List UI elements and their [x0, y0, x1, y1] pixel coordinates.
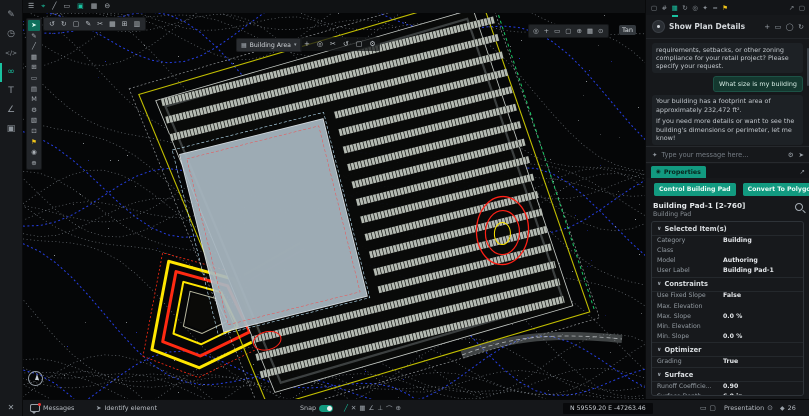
redo-icon[interactable]: ↻ [61, 20, 67, 28]
settings-icon[interactable]: ⚙ [369, 40, 375, 48]
section-title: Optimizer [664, 346, 701, 354]
copy-icon[interactable]: ▢ [73, 20, 80, 28]
grid-icon[interactable]: ▦ [109, 20, 116, 28]
section-header[interactable]: Selected Item(s) [652, 222, 803, 236]
cut-icon[interactable]: ✂ [97, 20, 103, 28]
property-label: Category [657, 237, 723, 246]
property-row: Runoff Coefficie...0.90 [652, 382, 803, 392]
assistant-message-line: If you need more details or want to see … [656, 117, 799, 142]
property-label: Runoff Coefficie... [657, 383, 723, 392]
panel-tab-strip: ▢#▦↻◎✦≈⚑ ↗▢ [646, 0, 809, 15]
new-window-icon[interactable]: ▢ [799, 1, 805, 15]
convert-to-polygon-button[interactable]: Convert To Polygon [743, 183, 809, 196]
view-mode-icons: ▭▢ [700, 400, 716, 416]
chat-header: Show Plan Details +▭◯↻ [646, 15, 809, 39]
canvas-tool-strip: ➤✎╱▦⊞▭▤M⚙▧⊡⚑◉⊕ [26, 18, 42, 170]
identify-cursor-icon: ➤ [96, 404, 101, 412]
property-value[interactable]: 0.0 % [723, 313, 742, 322]
status-bar: Messages ➤ Identify element Snap ╱✕▦∠⊥⌒⊕… [22, 399, 809, 416]
scale-icon: ◆ [780, 405, 785, 412]
history-icon[interactable]: ↻ [798, 23, 804, 31]
site-plan-canvas[interactable]: ↺↻▢✎✂▦⊞▥ ➤✎╱▦⊞▭▤M⚙▧⊡⚑◉⊕ ▦ Building Area … [22, 13, 645, 400]
message-input[interactable] [661, 151, 783, 159]
application-window: ✎ ◷ </> ∞ T ∠ ▣ ✕ ☰⌖╱▭▣▦⊖ ↺↻▢✎✂▦⊞▥ ➤✎╱▦⊞… [0, 0, 809, 416]
measure-angle-icon[interactable]: ∠ [0, 101, 22, 120]
chevron-down-icon [657, 281, 661, 287]
hatch-tool-icon[interactable]: ▧ [28, 115, 40, 126]
presentation-power-icon[interactable]: ⊙ [767, 404, 773, 412]
property-value[interactable]: False [723, 292, 741, 301]
tab-properties[interactable]: ◉ Properties [651, 166, 706, 178]
zoom-in-icon[interactable]: + [544, 27, 549, 35]
edit-floatbar: ↺↻▢✎✂▦⊞▥ [43, 17, 146, 31]
code-icon[interactable]: </> [0, 44, 22, 63]
selection-actions-bar: +◎✂↺▢⚙ [300, 37, 380, 51]
rectangle-tool-icon[interactable]: ▭ [28, 73, 40, 84]
history-icon[interactable]: ◷ [0, 25, 22, 44]
rectangle-tool-icon[interactable]: ▭ [63, 0, 70, 13]
snap-toggle[interactable] [319, 405, 333, 412]
add-grid-icon[interactable]: ⊞ [122, 20, 128, 28]
input-settings-icon[interactable]: ⚙ [788, 151, 794, 159]
selection-subtitle: Building Pad [653, 211, 795, 218]
property-row: Surface Depth6.0 in [652, 393, 803, 396]
messages-icon[interactable] [30, 404, 40, 412]
view-icon[interactable]: ⊙ [598, 27, 603, 35]
properties-icon: ◉ [656, 169, 661, 175]
tab-pages-icon[interactable]: ▢ [651, 1, 657, 15]
property-row: GradingTrue [652, 357, 803, 367]
property-value[interactable]: Authoring [723, 257, 758, 266]
properties-panel: Selected Item(s) CategoryBuilding Class … [651, 221, 804, 396]
chevron-down-icon [657, 372, 661, 378]
undo-icon[interactable]: ↺ [49, 20, 55, 28]
repeat-icon[interactable]: ↺ [343, 40, 349, 48]
property-value[interactable]: 6.0 in [723, 393, 743, 396]
duplicate-icon[interactable]: ▢ [356, 40, 363, 48]
target-tool-icon[interactable]: ◉ [28, 147, 40, 158]
assistant-message-line: Your building has a footprint area of ap… [656, 97, 799, 114]
add-point-tool-icon[interactable]: ⊕ [28, 158, 40, 169]
property-value[interactable]: Building Pad-1 [723, 267, 774, 276]
frame-icon[interactable]: ▢ [565, 27, 571, 35]
snap-label: Snap [300, 404, 316, 412]
chat-input-row: ✦ ⚙➤ [646, 146, 809, 163]
tab-refresh-icon[interactable]: ↻ [682, 1, 687, 15]
layers-icon[interactable]: ▦ [91, 0, 98, 13]
cursor-coordinates: N 59559.20 E -47263.46 [563, 403, 653, 414]
app-sidebar: ✎ ◷ </> ∞ T ∠ ▣ ✕ [0, 0, 23, 416]
property-row: Min. Slope0.0 % [652, 332, 803, 342]
section-title: Surface [664, 371, 693, 379]
chevron-down-icon [657, 347, 661, 353]
settings-tool-icon[interactable]: ⚙ [28, 105, 40, 116]
section-title: Selected Item(s) [664, 225, 726, 233]
property-label: Surface Depth [657, 393, 723, 396]
line-tool-icon[interactable]: ╱ [28, 41, 40, 52]
chevron-down-icon [657, 226, 661, 232]
tab-sparkle-icon[interactable]: ✦ [702, 1, 707, 15]
sparkle-icon: ✦ [652, 151, 657, 159]
flag-tool-icon[interactable]: ⚑ [28, 137, 40, 148]
property-value[interactable]: 0.90 [723, 383, 738, 392]
remove-icon[interactable]: ⊖ [104, 0, 110, 13]
identify-element-label[interactable]: Identify element [104, 404, 157, 412]
assistant-message: requirements, setbacks, or other zoning … [652, 43, 803, 73]
send-icon[interactable]: ➤ [799, 151, 804, 159]
layers-on-icon[interactable]: ▣ [77, 0, 84, 13]
origin-snap-icon[interactable]: ⌖ [41, 0, 45, 13]
right-panel: ▢#▦↻◎✦≈⚑ ↗▢ Show Plan Details +▭◯↻ requi… [645, 0, 809, 400]
window-icon[interactable]: ▢ [709, 404, 715, 412]
property-label: User Label [657, 267, 723, 276]
property-row: Max. Slope0.0 % [652, 312, 803, 322]
material-tool-icon[interactable]: M [28, 94, 40, 105]
property-label: Min. Elevation [657, 323, 723, 332]
snap-line-icon[interactable]: ╱ [344, 404, 348, 412]
top-toolbar: ☰⌖╱▭▣▦⊖ [22, 0, 645, 13]
search-icon[interactable] [795, 203, 803, 211]
grid-tool-icon[interactable]: ▦ [28, 52, 40, 63]
topography-map[interactable] [22, 13, 645, 400]
section-header[interactable]: Surface [652, 367, 803, 382]
scale-count: 26 [788, 404, 796, 412]
tab-flag-icon[interactable]: ⚑ [722, 1, 728, 15]
orbit-icon[interactable]: ◎ [533, 27, 539, 35]
property-label: Model [657, 257, 723, 266]
presentation-label[interactable]: Presentation [724, 404, 764, 412]
messages-label[interactable]: Messages [43, 404, 74, 412]
add-pad-tool-icon[interactable]: ⊞ [28, 62, 40, 73]
link-tool-icon[interactable]: ∞ [0, 63, 22, 82]
snap-grid-icon[interactable]: ▦ [359, 404, 365, 412]
center-icon[interactable]: ⊕ [576, 27, 581, 35]
snap-tangent-icon[interactable]: ⌒ [386, 403, 393, 413]
tab-target-icon[interactable]: ◎ [692, 1, 698, 15]
user-message: What size is my building [713, 76, 803, 91]
text-tool-icon[interactable]: T [0, 82, 22, 101]
tab-wave-icon[interactable]: ≈ [712, 1, 717, 15]
select-tool-icon[interactable]: ➤ [28, 20, 40, 31]
menu-icon[interactable]: ☰ [28, 0, 34, 13]
boxed-dot-tool-icon[interactable]: ⊡ [28, 126, 40, 137]
section-optimizer: Optimizer GradingTrue [652, 342, 803, 367]
split-view-icon[interactable]: ▥ [134, 20, 141, 28]
snap-modes: ╱✕▦∠⊥⌒⊕ [344, 400, 401, 416]
compass-widget[interactable] [28, 371, 43, 386]
tab-grid-icon[interactable]: # [662, 1, 667, 15]
property-value[interactable]: 0.0 % [723, 333, 742, 342]
property-label: Grading [657, 358, 723, 367]
property-row: Max. Elevation [652, 302, 803, 312]
section-constraints: Constraints Use Fixed SlopeFalse Max. El… [652, 277, 803, 343]
edit-icon[interactable]: ✎ [85, 20, 91, 28]
section-selected-items: Selected Item(s) CategoryBuilding Class … [652, 222, 803, 277]
rows-tool-icon[interactable]: ▤ [28, 84, 40, 95]
cut-icon[interactable]: ✂ [330, 40, 336, 48]
popout-icon[interactable]: ↗ [800, 168, 805, 176]
pad-actions: Control Building Pad Convert To Polygon [646, 180, 809, 196]
layout-icon[interactable]: ▭ [700, 404, 706, 412]
grid-icon[interactable]: ▦ [587, 27, 593, 35]
section-header[interactable]: Optimizer [652, 342, 803, 357]
pencil-tool-icon[interactable]: ✎ [28, 31, 40, 42]
property-row: Use Fixed SlopeFalse [652, 292, 803, 302]
snap-center-icon[interactable]: ⊕ [396, 404, 401, 412]
section-title: Constraints [664, 280, 707, 288]
chat-history[interactable]: requirements, setbacks, or other zoning … [646, 40, 809, 146]
property-label: Class [657, 247, 723, 256]
expand-icon[interactable]: ↗ [789, 1, 794, 15]
property-label: Use Fixed Slope [657, 292, 723, 301]
control-building-pad-button[interactable]: Control Building Pad [654, 183, 736, 196]
properties-tab-label: Properties [664, 169, 701, 176]
draw-tool-icon[interactable]: ✎ [0, 6, 22, 25]
chat-scrollbar[interactable] [807, 48, 809, 86]
property-row: Min. Elevation [652, 322, 803, 332]
assistant-message: Your building has a footprint area of ap… [652, 95, 803, 145]
property-value[interactable]: True [723, 358, 738, 367]
line-tool-icon[interactable]: ╱ [52, 0, 56, 13]
assistant-avatar [652, 20, 665, 33]
snap-tooltip: Tan [619, 25, 636, 35]
property-row: Class [652, 246, 803, 256]
move-icon[interactable]: + [304, 40, 310, 48]
snap-intersection-icon[interactable]: ✕ [351, 404, 356, 412]
properties-tab-row: ◉ Properties ↗ [646, 164, 809, 178]
add-chat-icon[interactable]: + [764, 23, 770, 31]
property-label: Max. Elevation [657, 303, 723, 312]
property-row: ModelAuthoring [652, 256, 803, 266]
property-value[interactable]: Building [723, 237, 752, 246]
selection-header: Building Pad-1 [2-760] Building Pad [646, 199, 809, 218]
property-label: Min. Slope [657, 333, 723, 342]
rotate-icon[interactable]: ◎ [317, 40, 323, 48]
snap-perpendicular-icon[interactable]: ⊥ [377, 404, 383, 412]
selection-title: Building Pad-1 [2-760] [653, 201, 795, 210]
chevron-down-icon: ▾ [294, 42, 297, 48]
panel-icon[interactable]: ▭ [775, 23, 782, 31]
selection-type-label: Building Area [250, 42, 291, 49]
section-header[interactable]: Constraints [652, 277, 803, 292]
refresh-icon[interactable]: ◯ [786, 23, 794, 31]
toolbox-icon[interactable]: ▣ [0, 120, 22, 139]
snap-angle-icon[interactable]: ∠ [369, 404, 375, 412]
tools-icon[interactable]: ✕ [0, 400, 22, 415]
property-row: CategoryBuilding [652, 236, 803, 246]
section-surface: Surface Runoff Coefficie...0.90 Surface … [652, 367, 803, 396]
property-label: Max. Slope [657, 313, 723, 322]
tab-table-icon[interactable]: ▦ [672, 1, 678, 15]
building-area-icon: ▦ [241, 42, 247, 49]
property-row: User LabelBuilding Pad-1 [652, 266, 803, 276]
pan-icon[interactable]: ▭ [554, 27, 560, 35]
panel-title: Show Plan Details [669, 22, 760, 31]
selection-type-pill[interactable]: ▦ Building Area ▾ [236, 38, 302, 52]
view-minibar: ◎+▭▢⊕▦⊙ [528, 24, 609, 38]
